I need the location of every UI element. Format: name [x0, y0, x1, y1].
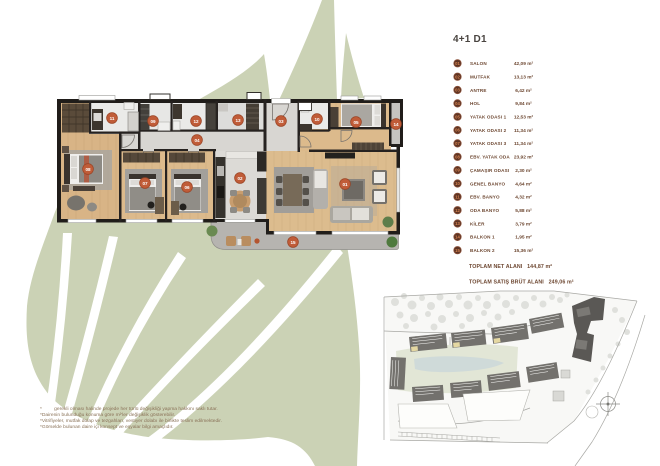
- svg-text:14: 14: [455, 235, 460, 240]
- svg-text:BALKON 2: BALKON 2: [470, 248, 495, 253]
- svg-text:07: 07: [142, 181, 148, 186]
- svg-text:12,53 m²: 12,53 m²: [514, 115, 534, 121]
- svg-text:09: 09: [455, 168, 460, 173]
- svg-text:02: 02: [455, 74, 460, 79]
- svg-text:03: 03: [455, 88, 460, 93]
- svg-text:15,36 m²: 15,36 m²: [514, 248, 534, 254]
- svg-text:11: 11: [110, 116, 115, 121]
- svg-text:ÇAMAŞIR ODASI: ÇAMAŞIR ODASI: [470, 168, 509, 173]
- svg-text:11,34 m²: 11,34 m²: [514, 141, 533, 147]
- svg-text:15: 15: [290, 240, 296, 245]
- svg-text:13: 13: [235, 118, 241, 123]
- svg-text:15: 15: [455, 248, 460, 253]
- svg-text:12: 12: [193, 119, 199, 124]
- svg-text:YATAK ODASI 1: YATAK ODASI 1: [470, 115, 507, 120]
- svg-text:04: 04: [455, 101, 460, 106]
- svg-text:06: 06: [184, 185, 190, 190]
- svg-text:10: 10: [314, 117, 320, 122]
- svg-text:ODA BANYO: ODA BANYO: [470, 208, 500, 213]
- svg-text:YATAK ODASI 3: YATAK ODASI 3: [470, 141, 507, 146]
- svg-text:13: 13: [455, 221, 460, 226]
- svg-text:6,42 m²: 6,42 m²: [515, 88, 532, 94]
- svg-text:KİLER: KİLER: [470, 220, 485, 226]
- svg-text:23,92 m²: 23,92 m²: [514, 155, 534, 161]
- svg-text:TOPLAM NET ALANI 144,87 m²: TOPLAM NET ALANI 144,87 m²: [469, 264, 552, 270]
- svg-text:SALON: SALON: [470, 61, 487, 66]
- svg-text:4,32 m²: 4,32 m²: [515, 195, 532, 201]
- svg-text:07: 07: [455, 141, 460, 146]
- svg-text:05: 05: [455, 114, 460, 119]
- svg-text:10: 10: [455, 181, 460, 186]
- svg-text:04: 04: [194, 138, 200, 143]
- svg-text:HOL: HOL: [470, 101, 480, 106]
- svg-text:EBV. YATAK ODA: EBV. YATAK ODA: [470, 155, 510, 160]
- svg-text:42,09 m²: 42,09 m²: [514, 61, 534, 67]
- svg-text:5,88 m²: 5,88 m²: [515, 208, 532, 214]
- svg-text:MUTFAK: MUTFAK: [470, 75, 491, 80]
- svg-text:08: 08: [85, 167, 91, 172]
- svg-text:01: 01: [455, 61, 460, 66]
- svg-text:EBV. BANYO: EBV. BANYO: [470, 195, 500, 200]
- svg-text:13,13 m²: 13,13 m²: [514, 75, 534, 81]
- svg-text:05: 05: [353, 120, 359, 125]
- svg-text:ANTRE: ANTRE: [470, 88, 487, 93]
- svg-text:2,30 m²: 2,30 m²: [515, 168, 532, 174]
- svg-text:4,64 m²: 4,64 m²: [515, 181, 532, 187]
- svg-text:3,79 m²: 3,79 m²: [515, 221, 532, 227]
- svg-text:1,95 m²: 1,95 m²: [515, 235, 532, 241]
- svg-text:08: 08: [455, 154, 460, 159]
- svg-text:9,84 m²: 9,84 m²: [515, 101, 532, 107]
- svg-text:YATAK ODASI 2: YATAK ODASI 2: [470, 128, 507, 133]
- svg-text:11: 11: [455, 194, 460, 199]
- svg-text:TOPLAM SATIŞ BRÜT ALANI 249,: TOPLAM SATIŞ BRÜT ALANI 249,06 m²: [469, 279, 574, 286]
- svg-text:GENEL BANYO: GENEL BANYO: [470, 181, 506, 186]
- svg-text:14: 14: [393, 122, 399, 127]
- svg-text:03: 03: [278, 119, 284, 124]
- svg-text:01: 01: [342, 182, 348, 187]
- svg-text:11,34 m²: 11,34 m²: [514, 128, 533, 134]
- svg-text:09: 09: [150, 119, 156, 124]
- svg-text:12: 12: [455, 208, 460, 213]
- svg-text:02: 02: [237, 176, 243, 181]
- svg-text:06: 06: [455, 128, 460, 133]
- svg-text:BALKON 1: BALKON 1: [470, 235, 495, 240]
